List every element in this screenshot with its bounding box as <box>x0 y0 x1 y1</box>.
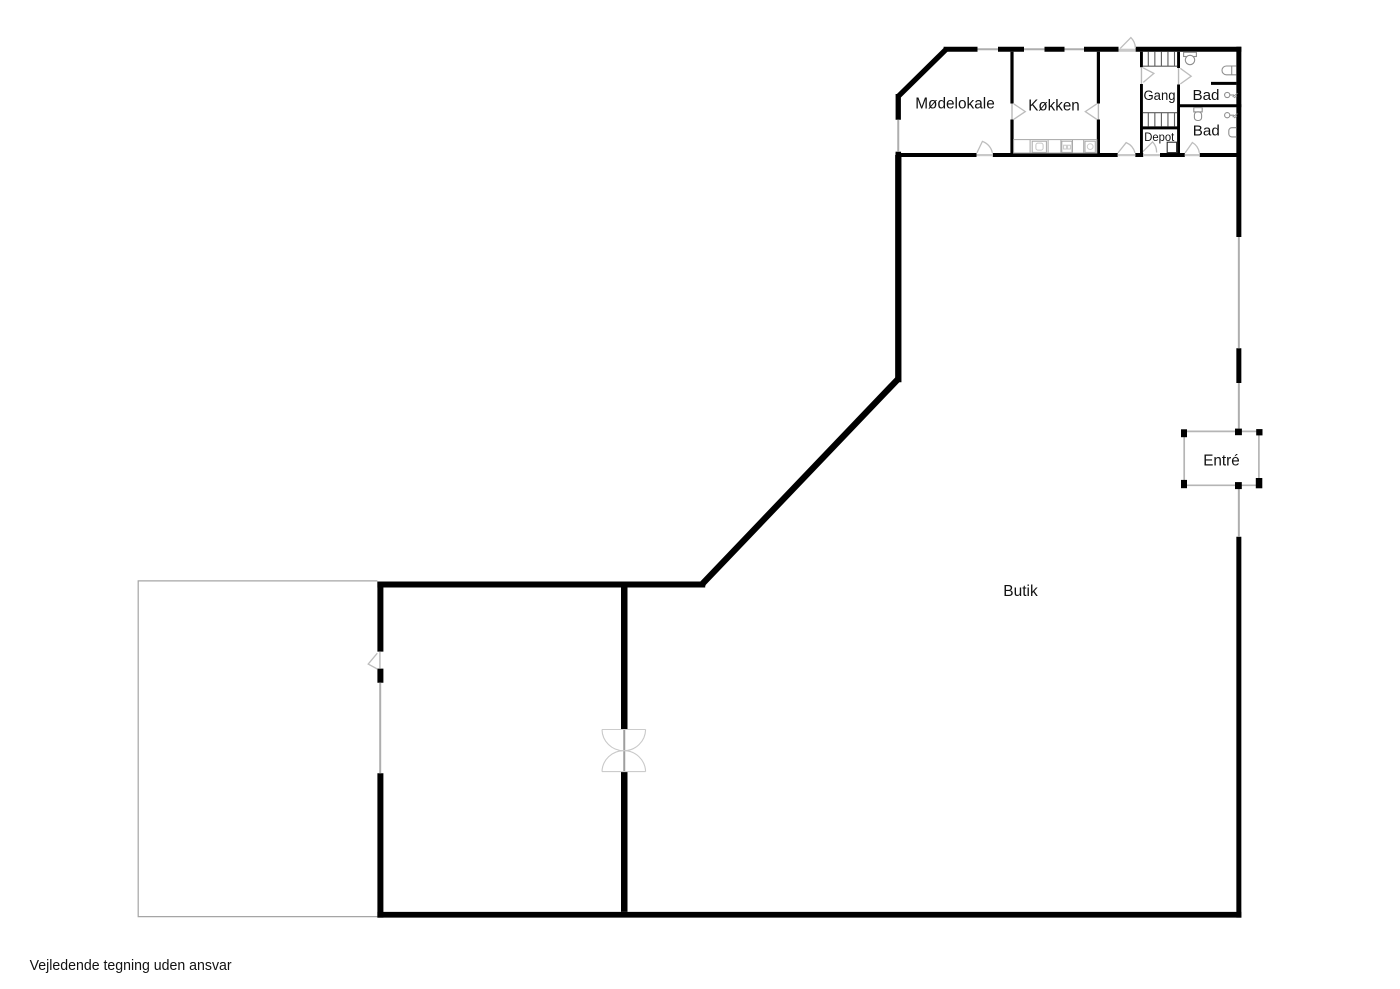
svg-text:Vejledende tegning uden ansvar: Vejledende tegning uden ansvar <box>30 957 232 974</box>
svg-text:Butik: Butik <box>1003 583 1038 600</box>
svg-text:Gang: Gang <box>1144 88 1176 103</box>
svg-text:Mødelokale: Mødelokale <box>915 96 995 113</box>
svg-text:Depot: Depot <box>1144 132 1175 144</box>
svg-text:Køkken: Køkken <box>1028 98 1080 115</box>
svg-text:Entré: Entré <box>1203 453 1240 470</box>
svg-text:Bad: Bad <box>1193 122 1220 139</box>
svg-text:Bad: Bad <box>1193 87 1220 104</box>
